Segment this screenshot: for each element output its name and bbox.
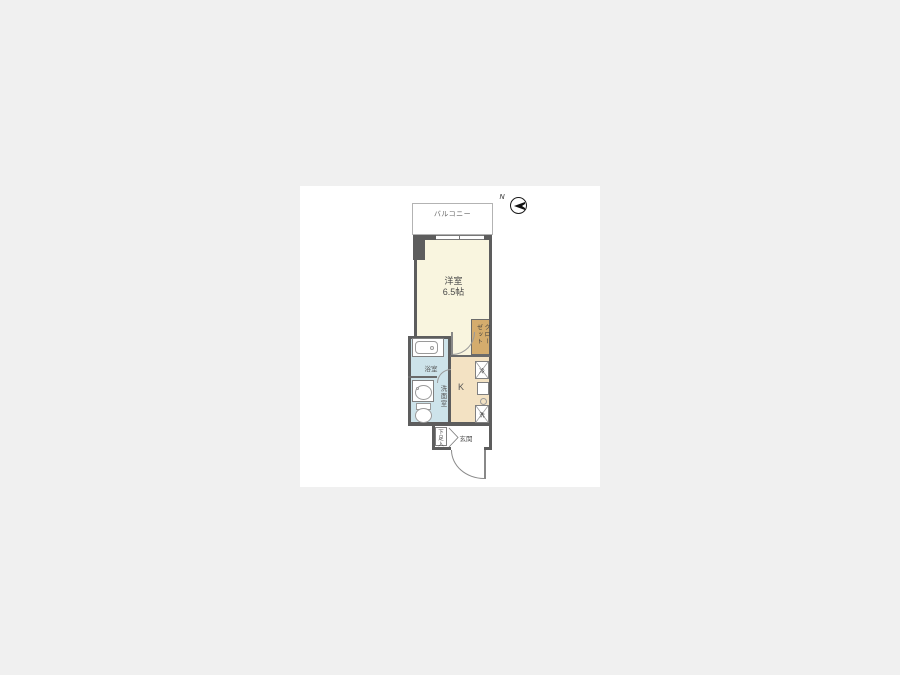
- front-door-leaf: [484, 450, 486, 479]
- floor-plan-canvas: バルコニー N: [300, 186, 600, 487]
- wall-bath-washroom-divider: [408, 376, 437, 378]
- front-door-arc: [451, 450, 484, 479]
- kitchen-label: K: [453, 382, 469, 392]
- toilet-bowl: [415, 408, 432, 423]
- window: [436, 235, 484, 240]
- main-room-size: 6.5帖: [417, 287, 490, 298]
- washroom-label: 洗面室: [437, 385, 447, 413]
- entrance-label: 玄関: [454, 433, 478, 443]
- bathroom-label: 浴室: [413, 363, 449, 373]
- bathtub-inner: [415, 341, 438, 354]
- main-room-label: 洋室: [417, 276, 490, 287]
- closet-label: クローゼット: [472, 324, 489, 349]
- wall-right: [489, 235, 492, 450]
- compass-needle-notch: [522, 204, 525, 208]
- shoe-storage-label: 下足入: [436, 429, 444, 447]
- washbasin-faucet-icon: [416, 387, 420, 391]
- main-room-door-leaf: [451, 332, 453, 355]
- north-label: N: [497, 194, 507, 201]
- wall-left-lower: [408, 336, 411, 426]
- stove-burner-icon: [480, 398, 487, 405]
- main-room-label-block: 洋室 6.5帖: [417, 276, 490, 298]
- bathtub-drain-icon: [430, 346, 434, 350]
- kitchen-sink: [477, 382, 489, 395]
- wall-kitchen-top: [450, 355, 490, 357]
- balcony-area: [412, 203, 493, 235]
- window-center-tick: [459, 235, 460, 240]
- washer-label: 洗: [475, 411, 489, 419]
- balcony-label: バルコニー: [412, 209, 493, 219]
- refrigerator-label: 冷: [475, 367, 489, 375]
